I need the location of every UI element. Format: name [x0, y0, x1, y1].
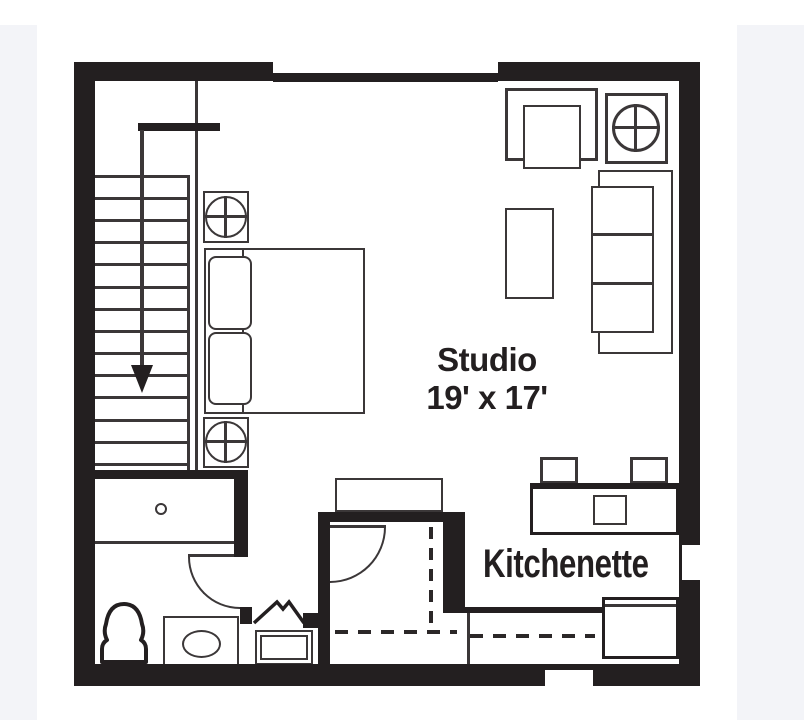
closet-door-swing-arc: [330, 527, 386, 583]
sofa-cushions: [591, 186, 654, 333]
wall-top-middle: [273, 73, 498, 82]
lamp-cross-line: [224, 421, 227, 463]
wall-bathroom-right: [234, 479, 248, 557]
wall-closet-right: [443, 512, 465, 610]
cabinet-dashed-line: [470, 634, 595, 638]
pillow: [208, 256, 252, 330]
armchair-seat: [523, 105, 581, 169]
pillow: [208, 332, 252, 405]
kitchen-sink: [593, 495, 627, 525]
bar-stool: [540, 457, 578, 484]
stair-tread: [95, 419, 187, 422]
wall-closet-top: [318, 512, 460, 522]
bathroom-sink-basin: [182, 630, 221, 658]
wall-stub-bifold-right: [303, 613, 318, 628]
opening-bottom-wall: [545, 670, 593, 686]
sofa-cushion-line: [593, 233, 652, 236]
sofa-cushion-line: [593, 282, 652, 285]
dresser: [335, 478, 443, 512]
nook-cabinet-inner: [260, 635, 308, 660]
wall-bottom: [74, 664, 700, 686]
stair-tread: [95, 396, 187, 399]
wall-kitchen-counter-edge: [443, 607, 602, 613]
wall-stub-bath-door: [240, 607, 252, 624]
bathroom-door-swing-arc: [188, 557, 240, 609]
closet-shelf-dashed-line: [335, 630, 457, 634]
stair-stringer-line: [187, 175, 190, 470]
room-label-kitchenette: Kitchenette: [483, 544, 649, 584]
wall-closet-left: [318, 522, 330, 664]
vanity-front-line: [95, 541, 234, 544]
table-cross-line: [634, 104, 637, 152]
wall-stair-partition: [195, 80, 198, 470]
bifold-door-icon: [250, 598, 308, 626]
wall-bathroom-top: [74, 470, 248, 479]
studio-dimensions: 19' x 17': [377, 379, 597, 417]
wall-top-right: [498, 62, 700, 81]
page-margin-left: [0, 25, 37, 720]
appliance-top-line: [605, 604, 676, 607]
room-label-studio: Studio 19' x 17': [377, 341, 597, 417]
wall-right: [679, 62, 700, 686]
opening-right-wall: [682, 545, 704, 580]
bar-stool: [630, 457, 668, 484]
stair-arrow-tail: [138, 123, 220, 131]
wall-top-left: [74, 62, 273, 81]
stair-tread: [95, 441, 187, 444]
wall-left: [74, 62, 95, 686]
lamp-cross-line: [224, 196, 227, 238]
closet-rod-dashed-line: [429, 527, 433, 623]
page-margin-right: [737, 25, 804, 720]
stair-tread: [95, 463, 187, 466]
studio-name: Studio: [377, 341, 597, 379]
counter-side-line: [467, 613, 470, 664]
stair-arrow-head-icon: [131, 365, 153, 393]
stair-arrow-line: [140, 130, 144, 368]
floor-plan-page: Studio 19' x 17' Kitchenette: [0, 0, 804, 720]
vanity-knob-icon: [155, 503, 167, 515]
coffee-table: [505, 208, 554, 299]
toilet-icon: [97, 596, 151, 666]
